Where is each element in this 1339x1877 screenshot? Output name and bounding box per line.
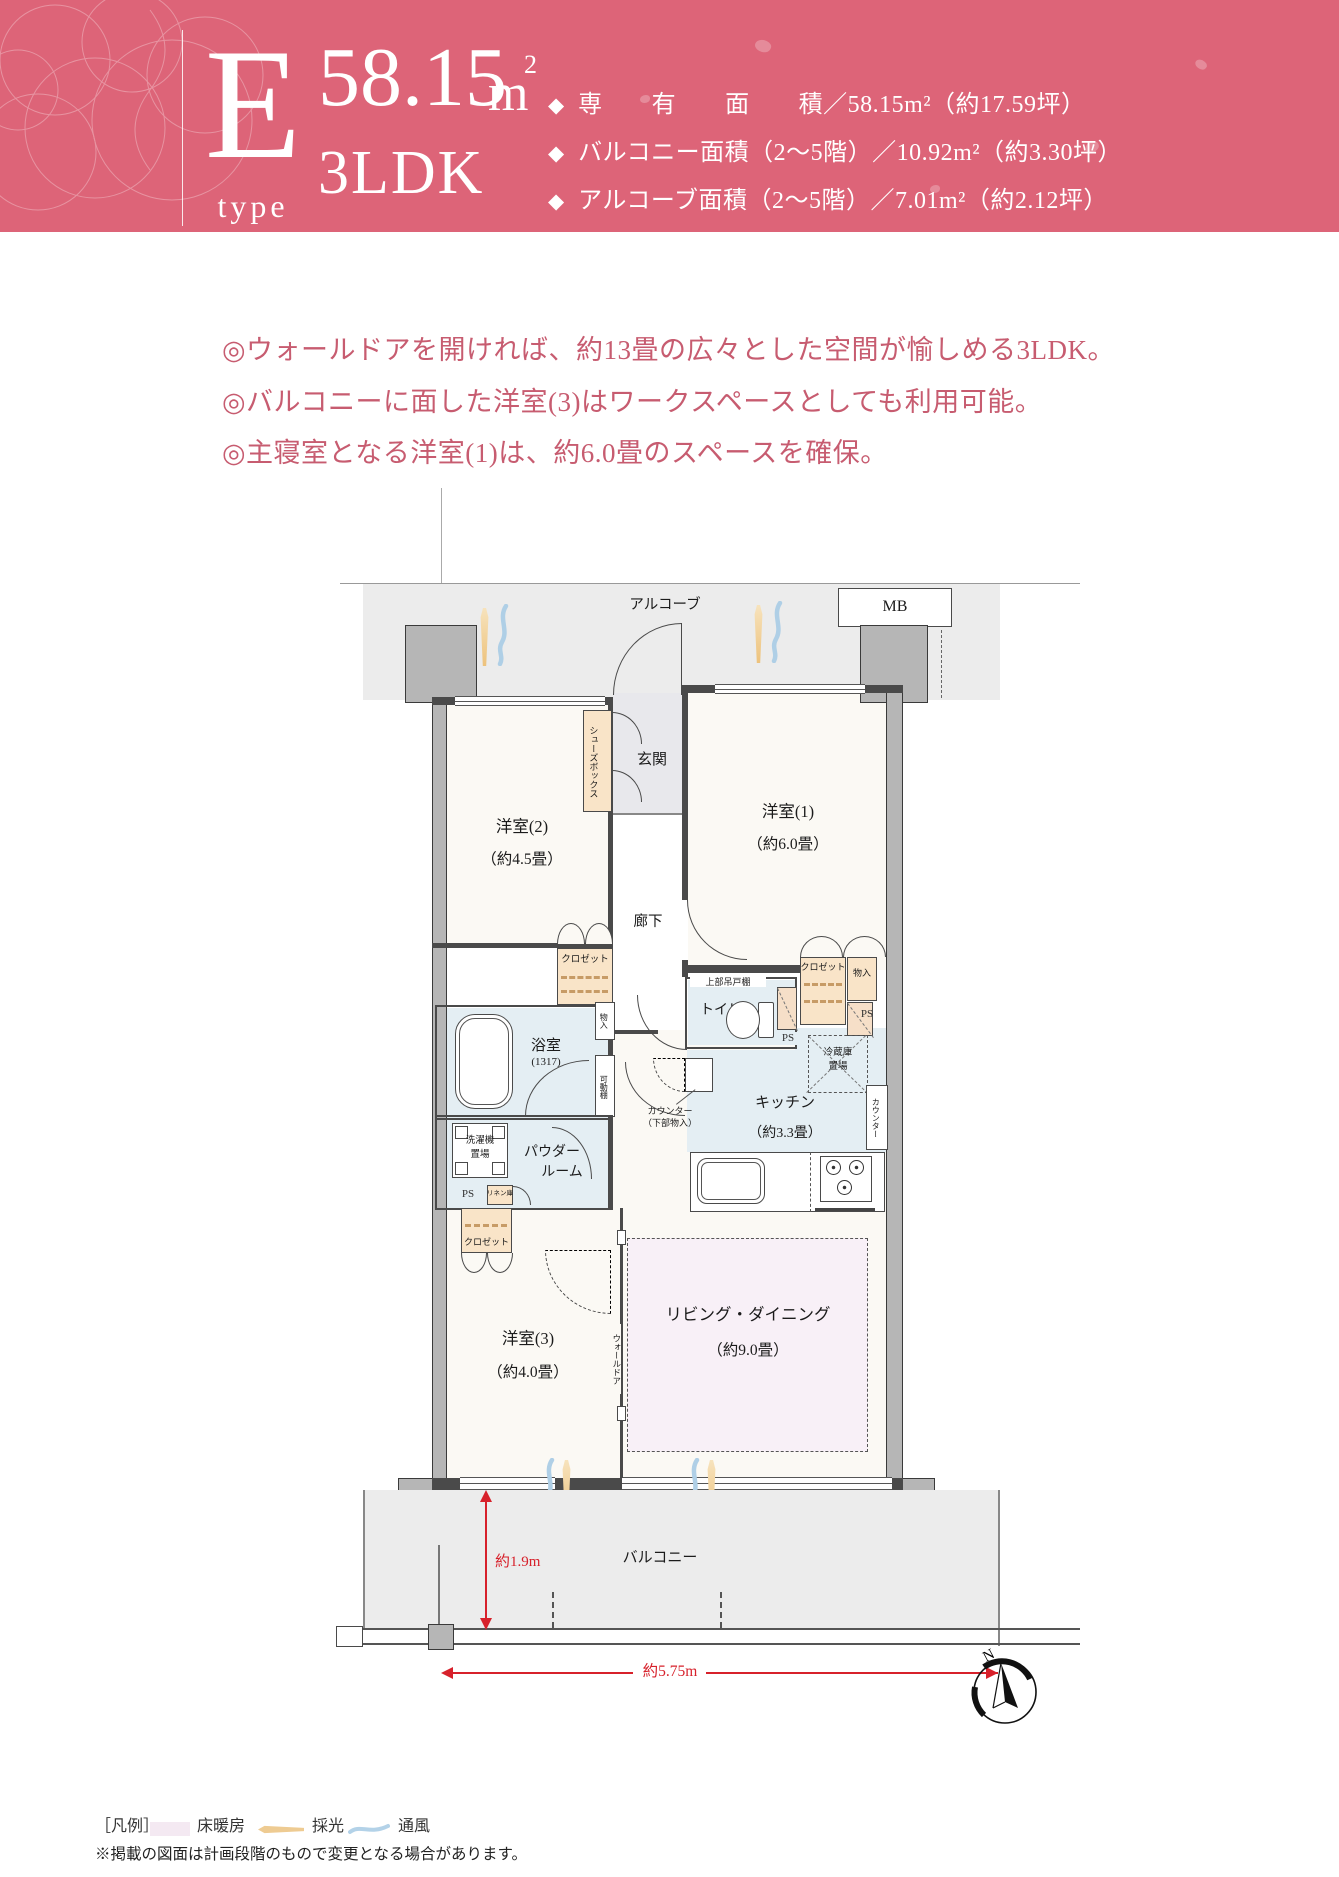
entry-counter <box>685 1058 713 1092</box>
feature-line: ◎バルコニーに面した洋室(3)はワークスペースとしても利用可能。 <box>222 388 1115 418</box>
daylight-icon <box>258 1825 304 1834</box>
storage-label: 物入 <box>599 1005 608 1037</box>
disclaimer-text: ※掲載の図面は計画段階のもので変更となる場合があります。 <box>95 1846 655 1864</box>
layout-type: 3LDK <box>318 142 484 204</box>
spec-text: アルコーブ面積（2～5階）／7.01m²（約2.12坪） <box>578 180 1108 215</box>
kitchen-label: キッチン <box>740 1095 830 1112</box>
wall-door-label: ウォールドア <box>611 1324 621 1394</box>
dimension-line-horizontal <box>443 1672 633 1674</box>
bathroom-label: 浴室 <box>516 1038 576 1055</box>
legend-title: ［凡例］ <box>95 1818 157 1836</box>
balcony-edge <box>363 1490 365 1628</box>
sink-inner <box>701 1162 761 1200</box>
meter-box-label: MB <box>838 598 952 616</box>
toilet-bowl <box>726 1001 760 1039</box>
spec-text: 専 有 面 積／58.15m²（約17.59坪） <box>578 84 1085 119</box>
diamond-icon: ◆ <box>548 141 564 166</box>
floor-heating-swatch <box>150 1822 190 1836</box>
dimension-line-vertical <box>485 1495 487 1625</box>
site-boundary-line <box>441 488 442 583</box>
east-wall <box>886 685 903 1490</box>
washer-corner <box>455 1162 468 1175</box>
feature-line: ◎主寝室となる洋室(1)は、約6.0畳のスペースを確保。 <box>222 439 1115 469</box>
entry-counter-label: カウンター <box>630 1106 710 1116</box>
dimension-arrow-left <box>441 1667 453 1679</box>
linen-closet-label: リネン庫 <box>487 1190 513 1197</box>
area-unit-sup: 2 <box>524 52 537 78</box>
balcony-divider-line <box>438 1545 440 1626</box>
railing-post <box>428 1624 454 1650</box>
balcony-partition-dash <box>720 1592 722 1628</box>
hall-label: 廊下 <box>618 914 678 931</box>
feature-list: ◎ウォールドアを開ければ、約13畳の広々とした空間が愉しめる3LDK。 ◎バルコ… <box>222 336 1115 491</box>
balcony-partition-dash <box>552 1592 554 1628</box>
spec-text: バルコニー面積（2～5階）／10.92m²（約3.30坪） <box>578 132 1122 167</box>
towel-bar <box>815 1208 875 1211</box>
entrance-step-line <box>613 813 682 815</box>
counter-label: カウンター <box>871 1090 880 1146</box>
washer-corner <box>492 1162 505 1175</box>
pipe-space <box>777 987 797 1030</box>
dimension-arrow-down <box>480 1618 492 1630</box>
counter-divider <box>810 1152 811 1212</box>
sink <box>697 1158 765 1204</box>
living-dining-label: リビング・ダイニング <box>662 1306 834 1325</box>
spec-row-balcony-area: ◆ バルコニー面積（2～5階）／10.92m²（約3.30坪） <box>548 132 1122 167</box>
alcove-label: アルコーブ <box>600 597 730 614</box>
fridge-label: 冷蔵庫 <box>808 1048 868 1059</box>
upper-cabinet-label: 上部吊戸棚 <box>690 977 766 987</box>
room3-label: 洋室(3) <box>458 1330 598 1349</box>
spec-list: ◆ 専 有 面 積／58.15m²（約17.59坪） ◆ バルコニー面積（2～5… <box>548 84 1122 228</box>
closet-shelf <box>804 1000 842 1003</box>
dimension-label-width: 約5.75m <box>635 1663 705 1681</box>
window <box>455 696 605 706</box>
header-band: E type 58.15 m 2 3LDK ◆ 専 有 面 積／58.15m²（… <box>0 0 1339 232</box>
spec-row-exclusive-area: ◆ 専 有 面 積／58.15m²（約17.59坪） <box>548 84 1122 119</box>
header-divider <box>182 30 183 226</box>
closet-label: クロゼット <box>800 962 846 972</box>
room1-size-label: （約6.0畳） <box>718 836 858 854</box>
area-unit: m <box>488 68 528 120</box>
legend-daylight-label: 採光 <box>312 1818 352 1836</box>
balcony-edge <box>998 1490 1000 1646</box>
area-value: 58.15 <box>318 36 507 120</box>
dimension-arrow-up <box>480 1490 492 1502</box>
ventilation-icon <box>769 601 785 663</box>
type-letter: E <box>192 26 314 184</box>
burner-icon <box>837 1180 852 1195</box>
burner-icon <box>849 1160 864 1175</box>
fridge-label: 置場 <box>808 1062 868 1073</box>
petal-decoration <box>753 37 773 55</box>
pipe-space-label: PS <box>455 1188 481 1201</box>
room2-label: 洋室(2) <box>452 818 592 837</box>
entry-counter-label: （下部物入） <box>626 1118 714 1128</box>
diamond-icon: ◆ <box>548 189 564 214</box>
dimension-label-depth: 約1.9m <box>495 1554 565 1571</box>
floorplan-page: E type 58.15 m 2 3LDK ◆ 専 有 面 積／58.15m²（… <box>0 0 1339 1877</box>
pillar <box>405 625 477 703</box>
storage-label: 物入 <box>847 968 877 978</box>
legend-floor-heating-label: 床暖房 <box>197 1818 257 1836</box>
partition-wall <box>682 685 688 900</box>
railing-end <box>336 1626 363 1647</box>
feature-line: ◎ウォールドアを開ければ、約13畳の広々とした空間が愉しめる3LDK。 <box>222 336 1115 366</box>
wall-door-hardware <box>617 1406 626 1421</box>
room2-size-label: （約4.5畳） <box>452 851 592 869</box>
bathtub <box>455 1014 513 1109</box>
window <box>715 684 865 694</box>
room1-label: 洋室(1) <box>718 803 858 822</box>
wall-door-hardware <box>617 1230 626 1245</box>
pipe-space-label: PS <box>775 1032 801 1045</box>
room3-size-label: （約4.0畳） <box>458 1364 598 1382</box>
pipe-space-label: PS <box>852 1008 882 1021</box>
diamond-icon: ◆ <box>548 93 564 118</box>
closet-shelf <box>804 983 842 986</box>
toilet-tank <box>758 1002 774 1038</box>
kitchen-size-label: （約3.3畳） <box>740 1126 830 1142</box>
closet-label: クロゼット <box>461 1237 512 1247</box>
hatch-line <box>777 988 798 1031</box>
closet-shelf <box>561 976 608 979</box>
legend-ventilation-label: 通風 <box>398 1818 438 1836</box>
petal-decoration <box>1194 57 1209 72</box>
balcony-label: バルコニー <box>590 1550 730 1567</box>
compass-icon: N <box>960 1645 1048 1733</box>
storage <box>847 957 877 1001</box>
living-dining-size-label: （約9.0畳） <box>704 1342 792 1360</box>
spec-row-alcove-area: ◆ アルコーブ面積（2～5階）／7.01m²（約2.12坪） <box>548 180 1122 215</box>
closet-shelf <box>561 990 608 993</box>
sliding-window <box>622 1477 892 1490</box>
dimension-line-horizontal <box>706 1672 998 1674</box>
partition-wall <box>688 965 800 973</box>
boundary-dashed-line <box>941 630 942 698</box>
ventilation-icon <box>348 1822 390 1836</box>
closet-shelf <box>465 1224 507 1227</box>
ventilation-icon <box>495 604 511 666</box>
shoes-box-label: シューズボックス <box>588 716 598 808</box>
burner-icon <box>826 1160 841 1175</box>
washer-label: 洗濯機 <box>452 1136 508 1147</box>
movable-shelf-label: 可動棚 <box>599 1062 608 1112</box>
closet-label: クロゼット <box>557 955 613 966</box>
bathtub-inner <box>459 1018 509 1105</box>
entrance-label: 玄関 <box>622 752 682 769</box>
washer-label: 置場 <box>452 1150 508 1161</box>
type-word: type <box>192 190 314 222</box>
